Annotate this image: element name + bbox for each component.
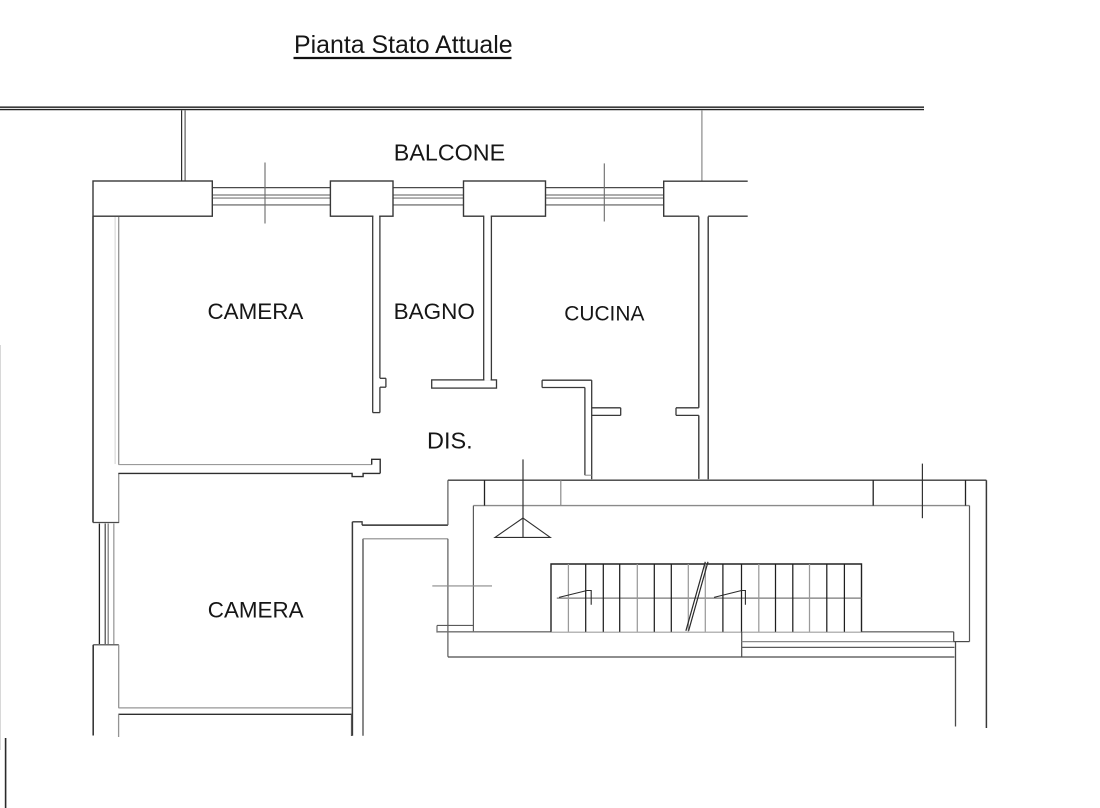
svg-text:BAGNO: BAGNO — [394, 299, 475, 324]
svg-text:CUCINA: CUCINA — [564, 302, 644, 325]
svg-text:BALCONE: BALCONE — [394, 139, 505, 165]
svg-text:Pianta Stato Attuale: Pianta Stato Attuale — [294, 31, 513, 59]
svg-text:CAMERA: CAMERA — [208, 299, 304, 324]
svg-text:CAMERA: CAMERA — [208, 597, 304, 622]
svg-text:DIS.: DIS. — [427, 427, 473, 453]
